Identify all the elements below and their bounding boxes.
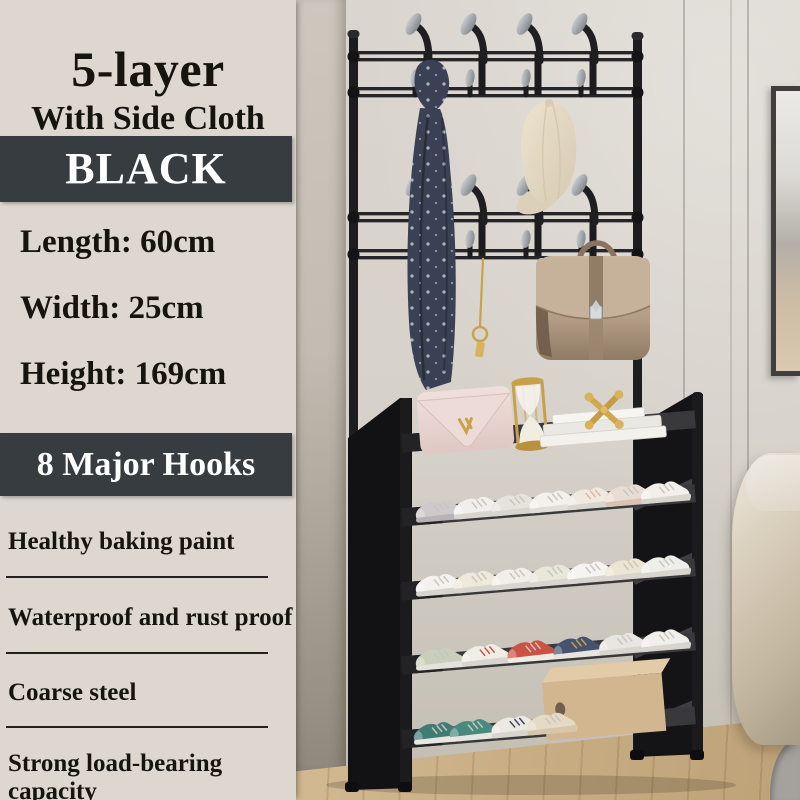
feature-divider	[6, 726, 268, 728]
baseball-cap	[512, 99, 576, 220]
color-badge: BLACK	[0, 136, 292, 202]
dimension-length: Length: 60cm	[20, 224, 215, 261]
feature-item: Strong load-bearing capacity	[8, 750, 296, 800]
dimension-height: Height: 169cm	[20, 356, 226, 393]
rack-scene	[296, 0, 800, 800]
feature-divider	[6, 652, 268, 654]
clutch-bag	[416, 385, 515, 454]
hooks-badge: 8 Major Hooks	[0, 433, 292, 496]
product-title: 5-layer	[0, 40, 296, 98]
info-panel: 5-layer With Side Cloth BLACK Length: 60…	[0, 0, 296, 800]
scarf	[407, 60, 455, 390]
dimension-width: Width: 25cm	[20, 290, 204, 327]
sneaker	[460, 643, 512, 667]
feature-item: Waterproof and rust proof	[8, 604, 293, 632]
sneaker	[506, 639, 558, 663]
product-subtitle: With Side Cloth	[0, 100, 296, 138]
sneaker	[552, 635, 604, 659]
feature-item: Healthy baking paint	[8, 528, 234, 556]
product-photo	[296, 0, 800, 800]
feature-item: Coarse steel	[8, 679, 136, 707]
product-image: 5-layer With Side Cloth BLACK Length: 60…	[0, 0, 800, 800]
keychain	[473, 258, 487, 357]
hanging-handbag	[536, 243, 650, 360]
feature-divider	[6, 576, 268, 578]
sneaker	[415, 646, 467, 670]
